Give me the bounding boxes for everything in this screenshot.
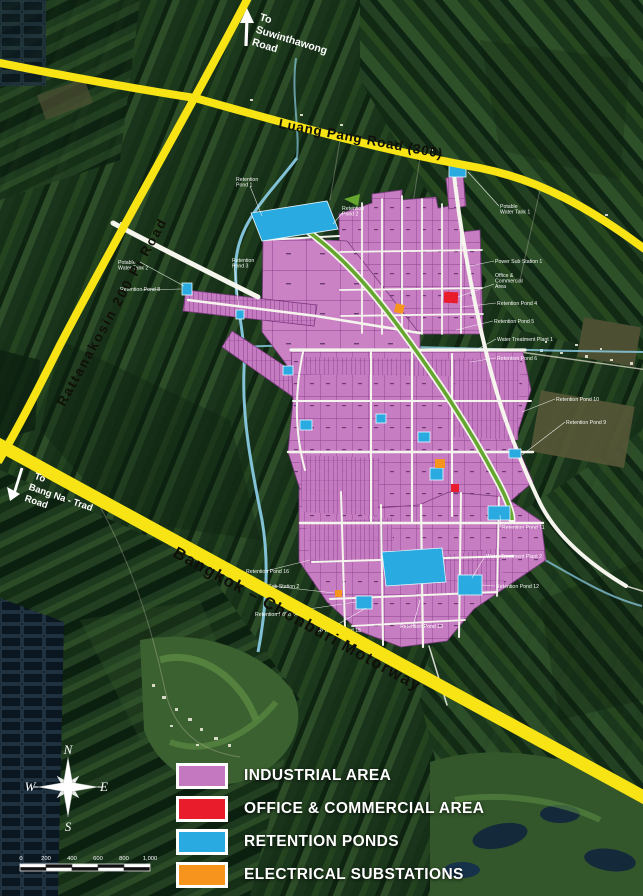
industrial-label: INDUSTRIAL AREA xyxy=(244,767,391,785)
facility-label: Retention Pond 12 xyxy=(496,584,539,590)
facility-label: Power Sub Station 1 xyxy=(495,259,542,265)
substation-2 xyxy=(335,590,342,597)
compass-e: E xyxy=(99,779,108,794)
svg-text:600: 600 xyxy=(93,856,103,862)
facility-label: Retention Pond 4 xyxy=(497,301,537,307)
facility-label: Retention Pond 16 xyxy=(246,569,289,575)
compass-s: S xyxy=(65,819,72,834)
ponds-label: RETENTION PONDS xyxy=(244,833,399,851)
map-legend: INDUSTRIAL AREA OFFICE & COMMERCIAL AREA… xyxy=(176,763,484,888)
ponds-swatch xyxy=(176,829,228,855)
facility-label: Retention Pond 5 xyxy=(494,319,534,325)
site-map-canvas: RetentionPond 1RetentionPond 2RetentionP… xyxy=(0,0,643,896)
facility-label: Retention Pond 9 xyxy=(566,420,606,426)
office-commercial-parcel xyxy=(444,292,459,304)
facility-label: Retention Pond 10 xyxy=(556,397,599,403)
office-label: OFFICE & COMMERCIAL AREA xyxy=(244,800,484,818)
legend-row-substations: ELECTRICAL SUBSTATIONS xyxy=(176,862,484,888)
masterplan-map: RetentionPond 1RetentionPond 2RetentionP… xyxy=(0,0,643,896)
legend-row-industrial: INDUSTRIAL AREA xyxy=(176,763,484,789)
svg-text:800: 800 xyxy=(119,856,129,862)
industrial-swatch xyxy=(176,763,228,789)
facility-label: Water Treatment Plant 2 xyxy=(486,554,542,560)
substations-swatch xyxy=(176,862,228,888)
compass-n: N xyxy=(63,742,74,757)
legend-row-office: OFFICE & COMMERCIAL AREA xyxy=(176,796,484,822)
svg-text:400: 400 xyxy=(67,856,77,862)
legend-row-ponds: RETENTION PONDS xyxy=(176,829,484,855)
facility-label: Retention Pond 6 xyxy=(497,356,537,362)
substation-1 xyxy=(394,303,405,314)
substations-label: ELECTRICAL SUBSTATIONS xyxy=(244,866,464,884)
facility-label: Retention Pond 11 xyxy=(502,525,545,531)
svg-text:200: 200 xyxy=(41,856,51,862)
facility-label: Water Treatment Plant 1 xyxy=(497,337,553,343)
compass-w: W xyxy=(25,779,37,794)
svg-text:1,000: 1,000 xyxy=(143,856,158,862)
facility-label: Retention Pond 13 xyxy=(400,624,443,630)
office-swatch xyxy=(176,796,228,822)
svg-text:0: 0 xyxy=(19,856,22,862)
